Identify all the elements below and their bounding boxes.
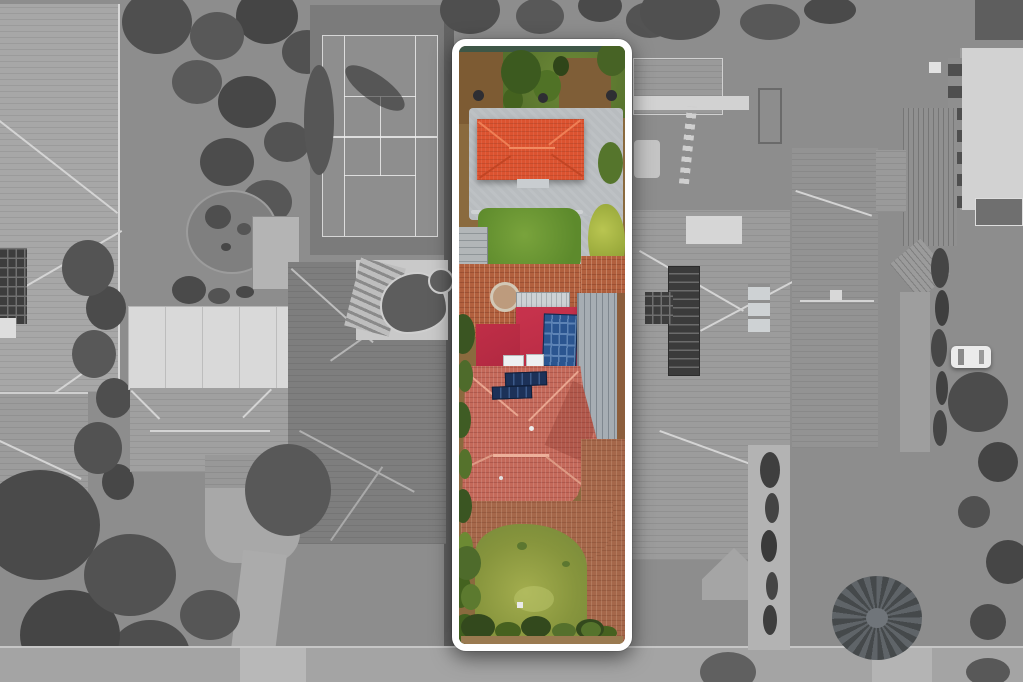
round-tree-mid-left [245, 444, 331, 536]
trees-right-edge [948, 372, 1008, 432]
rooftop-ac-unit [929, 62, 941, 73]
tennis-net-line [323, 136, 437, 138]
lower-solar-array-row1 [505, 371, 547, 386]
palm-tree [832, 576, 922, 660]
apartment-building-roof [960, 48, 1023, 210]
corrugated-roof-house [903, 108, 957, 246]
aerial-photo-scene [0, 0, 1023, 682]
garage-roof-hip [548, 119, 581, 145]
dark-hedge-row [931, 248, 949, 288]
car-rear-window [979, 350, 984, 364]
roof-hip-ridge [459, 454, 493, 481]
right-courtyard [900, 292, 930, 452]
lawn-white-marker [517, 602, 523, 608]
tree-cluster-left [62, 240, 114, 296]
pool-round-spa [428, 268, 454, 294]
tree-cluster-top-center [122, 0, 192, 54]
roof-vent [529, 426, 534, 431]
garden-bed-shrubs [205, 205, 231, 229]
right-neighbor-courtyard [686, 216, 742, 244]
garbage-bin [606, 90, 617, 101]
garage-roof-hip [479, 155, 511, 178]
front-strip-ground [461, 636, 623, 644]
right-neighbor-solar-small [645, 292, 673, 324]
apartment-rooftop-unit [975, 198, 1023, 226]
left-house-skylight [0, 318, 16, 338]
roof-main-ridge [493, 454, 549, 457]
right-rear-hedge [760, 452, 780, 488]
garage-roof-hip [551, 154, 583, 177]
garden-trellis-frames [758, 88, 782, 144]
garbage-bin [538, 93, 548, 103]
driveway-to-road [231, 550, 287, 655]
highlighted-property-boundary [452, 39, 632, 651]
right-neighbor-skylights [748, 284, 770, 332]
shrub-row [172, 276, 206, 304]
lawn-shrub-dot [517, 542, 527, 550]
rear-garden-trees [501, 50, 541, 94]
tennis-court [310, 5, 452, 255]
white-roof-building [128, 306, 296, 390]
garage-roof-hip [478, 121, 511, 147]
lawn-patch [514, 586, 554, 612]
road-crossover-left [240, 648, 306, 682]
tennis-court-surface [322, 35, 438, 237]
trees-top-right-of-frame [640, 0, 720, 40]
stepping-stone-path [679, 106, 697, 185]
white-parked-car [951, 346, 991, 368]
second-right-skylight [830, 290, 842, 300]
upper-solar-panel-array [542, 313, 578, 367]
garage-porch [517, 179, 549, 188]
car-windshield [958, 349, 964, 365]
side-bush [598, 142, 623, 184]
left-house-solar-panels [0, 248, 27, 324]
lower-solar-array-row2 [492, 385, 532, 399]
garage-roof-ridge [509, 147, 555, 149]
property-interior [459, 46, 625, 644]
palm-tree-crown [866, 608, 888, 628]
dark-roof-top-right [975, 0, 1023, 40]
garage-orange-roof [477, 119, 584, 180]
corrugated-house-wing [876, 150, 906, 212]
second-right-ridge [800, 300, 874, 302]
garbage-bin [473, 90, 484, 101]
roof-vent [499, 476, 503, 480]
rear-corner-tree [597, 46, 625, 76]
mid-left-roof-ridge [150, 430, 270, 432]
left-house-roof [0, 4, 120, 392]
neighbor-pool [634, 140, 660, 178]
skylight [526, 354, 544, 368]
tree-over-court [304, 65, 334, 175]
